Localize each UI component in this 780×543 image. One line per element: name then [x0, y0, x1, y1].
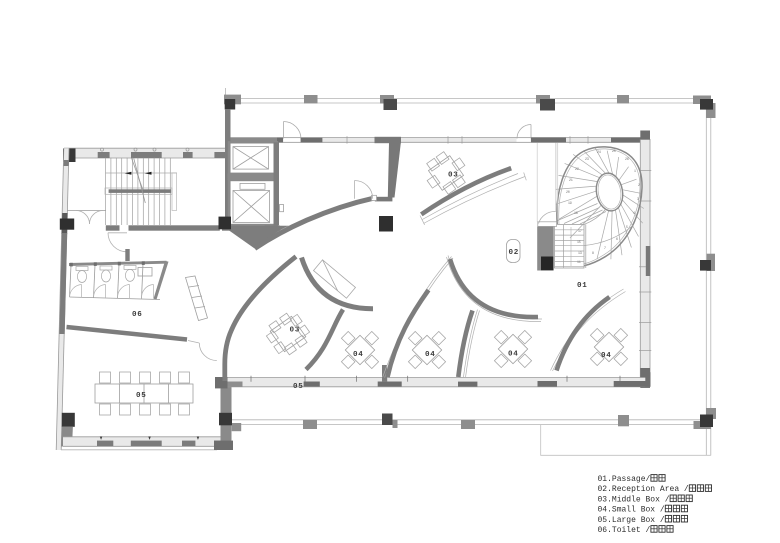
svg-text:20: 20 [566, 190, 570, 194]
svg-text:04: 04 [508, 351, 519, 359]
svg-text:13: 13 [578, 251, 582, 255]
svg-text:23: 23 [585, 157, 589, 161]
svg-text:05: 05 [136, 392, 147, 400]
svg-text:22: 22 [575, 167, 579, 171]
svg-text:24: 24 [597, 150, 601, 154]
svg-text:3: 3 [637, 197, 639, 201]
svg-text:03.Middle Box /: 03.Middle Box / [598, 495, 670, 504]
svg-text:05.Large Box /: 05.Large Box / [598, 516, 665, 525]
svg-text:2: 2 [638, 183, 640, 187]
svg-text:21: 21 [569, 178, 573, 182]
svg-text:17: 17 [578, 229, 582, 233]
svg-text:5: 5 [626, 225, 628, 229]
svg-text:02: 02 [509, 249, 520, 257]
svg-text:03: 03 [448, 172, 459, 180]
svg-text:7: 7 [604, 246, 606, 250]
svg-text:03: 03 [290, 327, 301, 335]
svg-text:8: 8 [592, 251, 594, 255]
svg-text:02.Reception Area /: 02.Reception Area / [598, 485, 689, 494]
svg-text:05: 05 [293, 383, 304, 391]
svg-text:01.Passage/: 01.Passage/ [598, 475, 651, 484]
svg-text:15: 15 [577, 240, 581, 244]
svg-text:18: 18 [574, 211, 578, 215]
svg-text:04.Small Box /: 04.Small Box / [598, 506, 665, 515]
svg-text:4: 4 [633, 211, 635, 215]
svg-text:1: 1 [634, 169, 636, 173]
svg-text:04: 04 [601, 352, 612, 360]
svg-text:01: 01 [577, 282, 588, 290]
svg-text:06.Toilet /: 06.Toilet / [598, 526, 651, 535]
svg-text:26: 26 [625, 157, 629, 161]
svg-text:06: 06 [132, 311, 143, 319]
svg-text:11: 11 [577, 260, 581, 264]
svg-text:25: 25 [612, 149, 616, 153]
svg-text:19: 19 [568, 201, 572, 205]
svg-text:04: 04 [425, 351, 436, 359]
svg-text:04: 04 [353, 351, 364, 359]
svg-text:6: 6 [616, 237, 618, 241]
